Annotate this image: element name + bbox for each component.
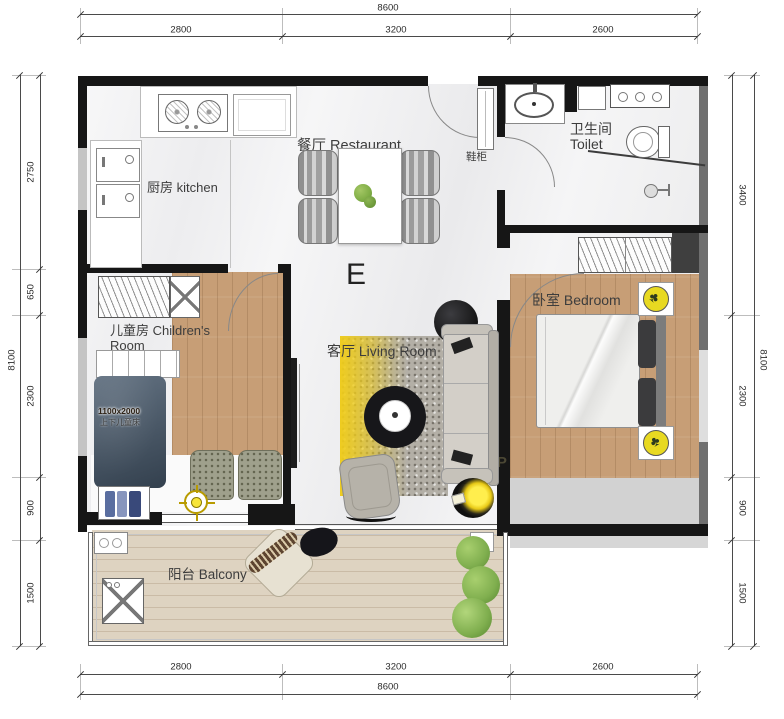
- window-circle-icon: [635, 92, 645, 102]
- washer-knob-icon: [114, 582, 120, 588]
- exterior-ledge: [510, 536, 708, 548]
- window-circle-icon: [618, 92, 628, 102]
- shower-pipe-icon: [668, 184, 670, 196]
- bed-blanket-fold: [537, 315, 639, 427]
- toilet-bowl: [626, 126, 660, 158]
- wall-bedroom-bottom: [497, 524, 708, 536]
- bedroom-bay-floor: [510, 478, 699, 524]
- dim-right-seg1: 3400: [737, 184, 748, 205]
- bed-sheet-line: [545, 317, 546, 425]
- laundry-basin-icon: [112, 538, 122, 548]
- balcony-wall-bottom: [88, 641, 508, 646]
- toilet-tank: [658, 126, 670, 158]
- dim-line-bottom-total: [80, 694, 697, 695]
- stove-knob: [194, 125, 198, 129]
- children-label-line2: Room: [110, 338, 145, 353]
- tv-panel: [291, 358, 297, 468]
- dim-right-seg2: 2300: [737, 385, 748, 406]
- bed: [536, 314, 640, 428]
- toilet-label-en: Toilet: [570, 136, 603, 152]
- children-chair: [238, 450, 282, 500]
- plant-icon: [452, 598, 492, 638]
- sofa-cushion-line: [444, 433, 490, 434]
- dim-top-seg3: 2600: [592, 25, 613, 36]
- dim-right-seg3: 900: [737, 500, 748, 516]
- kitchen-sink-1: [96, 148, 140, 182]
- tv-console-line: [299, 364, 300, 462]
- dim-bottom-total: 8600: [377, 682, 398, 693]
- children-shelf: [96, 350, 180, 378]
- dim-left-total: 8100: [7, 349, 18, 370]
- toilet-top-window: [610, 84, 670, 108]
- light-tick: [196, 485, 198, 493]
- dim-left-seg5: 1500: [26, 582, 37, 603]
- unit-type-label: E: [346, 258, 366, 292]
- basin-faucet-icon: [533, 83, 537, 92]
- light-tick: [207, 502, 215, 504]
- dim-top-seg2: 3200: [385, 25, 406, 36]
- sofa-cushion-line: [444, 383, 490, 384]
- nightstand-plant-icon: ♣: [643, 286, 669, 312]
- toilet-bowl-inner: [633, 132, 653, 152]
- kitchen-label: 厨房 kitchen: [147, 177, 218, 196]
- children-bookshelf: [98, 486, 150, 520]
- stove: [158, 94, 228, 132]
- balcony-wall-left: [88, 532, 93, 646]
- dim-bottom-seg3: 2600: [592, 662, 613, 673]
- bedroom-label: 卧室 Bedroom: [532, 290, 621, 310]
- children-label-line1: 儿童房 Children's: [110, 320, 210, 339]
- sink-drain-icon: [125, 193, 134, 202]
- dim-line-top-total: [80, 14, 697, 15]
- shoe-cabinet-label: 鞋柜: [466, 149, 487, 164]
- armchair-base-arc: [346, 510, 396, 522]
- book-icon: [129, 491, 141, 517]
- dim-top-seg1: 2800: [170, 25, 191, 36]
- children-bed: 1100x2000 上下儿童床: [94, 376, 166, 488]
- pillow: [638, 320, 656, 368]
- headboard: [656, 314, 666, 428]
- light-tick: [179, 502, 187, 504]
- armchair-seat-line: [347, 462, 393, 511]
- wall-chunk-wardrobe: [672, 233, 699, 273]
- window-circle-icon: [652, 92, 662, 102]
- book-icon: [105, 491, 115, 517]
- wardrobe-divider: [625, 238, 626, 272]
- ceiling-light-symbol: [182, 488, 212, 518]
- floor-plan-canvas: 8600 2800 3200 2600 2800 3200 2600 8600 …: [0, 0, 784, 719]
- washing-machine: [102, 578, 144, 624]
- sink-drain-icon: [125, 155, 134, 164]
- book-icon: [117, 491, 127, 517]
- nightstand: ♣: [638, 426, 674, 460]
- washer-knob-icon: [106, 582, 112, 588]
- dim-bottom-seg1: 2800: [170, 662, 191, 673]
- children-window: [78, 338, 87, 456]
- shoe-cabinet-line: [485, 91, 486, 147]
- wall-bedroom-stub: [497, 225, 510, 248]
- dim-right-seg4: 1500: [737, 582, 748, 603]
- dim-line-right-total: [754, 75, 755, 646]
- shower-head-icon: [644, 184, 658, 198]
- kitchen-cabinet: [233, 94, 291, 136]
- dim-left-seg1: 2750: [26, 161, 37, 182]
- cabinet-inner-line: [238, 99, 286, 131]
- sofa-backrest: [488, 330, 499, 486]
- balcony-counter: [94, 532, 128, 554]
- kitchen-sink-2: [96, 184, 140, 218]
- basin-drain-icon: [532, 102, 536, 106]
- children-bed-size: 1100x2000: [98, 406, 140, 416]
- nightstand: ♣: [638, 282, 674, 316]
- wall-top-left: [78, 76, 428, 86]
- laundry-basin-icon: [99, 538, 109, 548]
- toilet-partition-post: [565, 84, 577, 112]
- nightstand-plant-icon: ♣: [643, 430, 669, 456]
- faucet-icon: [102, 195, 105, 205]
- dim-line-top-segments: [80, 36, 697, 37]
- dim-line-left-total: [20, 75, 21, 646]
- plant-icon: [456, 536, 490, 570]
- washbasin-counter: [505, 84, 565, 124]
- children-cabinet-x: [170, 276, 200, 318]
- balcony-wall-right: [503, 532, 508, 646]
- bedroom-window: [699, 350, 708, 442]
- dim-right-total: 8100: [758, 349, 769, 370]
- kitchen-floor-edge: [230, 140, 231, 268]
- dim-left-seg2: 650: [26, 284, 37, 300]
- light-core-icon: [191, 497, 202, 508]
- shoe-cabinet: [477, 88, 494, 150]
- dining-chair: [400, 198, 440, 244]
- dim-left-seg3: 2300: [26, 385, 37, 406]
- coffee-table: [364, 386, 426, 448]
- light-tick: [196, 513, 198, 521]
- table-plant-icon: [364, 196, 376, 208]
- pillow: [638, 378, 656, 426]
- toilet-shelf: [578, 86, 606, 110]
- stove-knob: [185, 125, 189, 129]
- dim-line-right-segments: [732, 75, 733, 646]
- wall-children-living: [283, 272, 291, 524]
- tray-handle-icon: [392, 412, 398, 418]
- wall-toilet-left-a: [497, 76, 505, 137]
- hall-wardrobe: [578, 237, 672, 273]
- burner-icon: [197, 100, 221, 124]
- burner-icon: [165, 100, 189, 124]
- dim-top-total: 8600: [377, 3, 398, 14]
- wall-right: [699, 86, 708, 536]
- dining-chair: [400, 150, 440, 196]
- dining-chair: [298, 198, 338, 244]
- dim-line-bottom-segments: [80, 674, 697, 675]
- wall-post-balcony: [248, 504, 295, 525]
- dim-line-left-segments: [40, 75, 41, 646]
- dim-left-seg4: 900: [26, 500, 37, 516]
- children-bed-note: 上下儿童床: [100, 417, 140, 428]
- balcony-slider-line1: [295, 524, 497, 525]
- balcony-label: 阳台 Balcony: [168, 563, 247, 583]
- faucet-icon: [102, 157, 105, 167]
- wall-toilet-bottom: [505, 225, 708, 233]
- kitchen-window: [78, 148, 87, 210]
- living-label: 客厅 Living Room: [327, 341, 437, 361]
- children-wardrobe: [98, 276, 170, 318]
- dining-chair: [298, 150, 338, 196]
- dim-bottom-seg2: 3200: [385, 662, 406, 673]
